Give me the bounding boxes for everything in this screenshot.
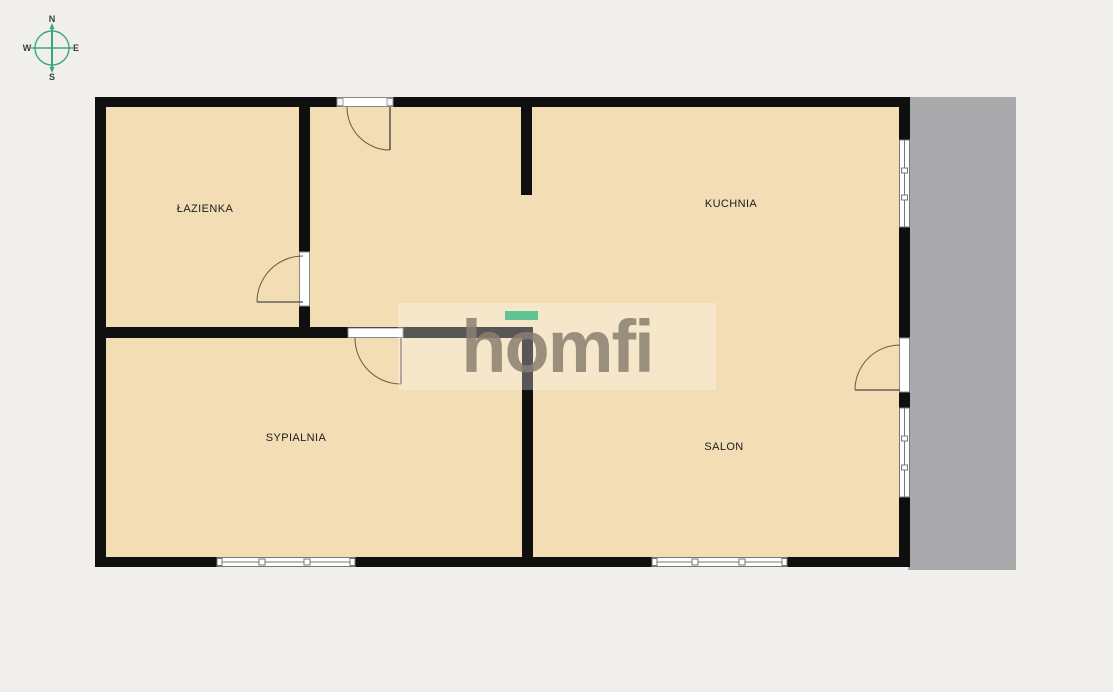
window-living-room-bottom — [652, 558, 787, 567]
room-label-bedroom: SYPIALNIA — [266, 432, 326, 444]
room-label-kitchen: KUCHNIA — [705, 198, 757, 210]
balcony-area — [908, 97, 1016, 570]
window-living-room-right — [900, 408, 910, 497]
floor-plan-canvas: homfi ŁAZIENKA KUCHNIA SYPIALNIA SALON N… — [0, 0, 1113, 692]
window-bedroom-bottom — [217, 558, 355, 567]
compass-west-label: W — [23, 43, 32, 53]
compass-rose: N E S W — [0, 0, 110, 100]
compass-north-label: N — [49, 14, 56, 24]
room-label-bathroom: ŁAZIENKA — [177, 203, 233, 215]
wall-kitchen-partial — [521, 107, 532, 195]
room-label-living-room: SALON — [704, 441, 743, 453]
compass-east-label: E — [73, 43, 79, 53]
logo-green-macron — [505, 311, 538, 320]
wall-top — [95, 97, 910, 107]
compass-south-label: S — [49, 72, 55, 82]
window-kitchen-right — [900, 140, 910, 227]
homfi-logo: homfi — [398, 303, 716, 390]
wall-left — [95, 97, 106, 567]
